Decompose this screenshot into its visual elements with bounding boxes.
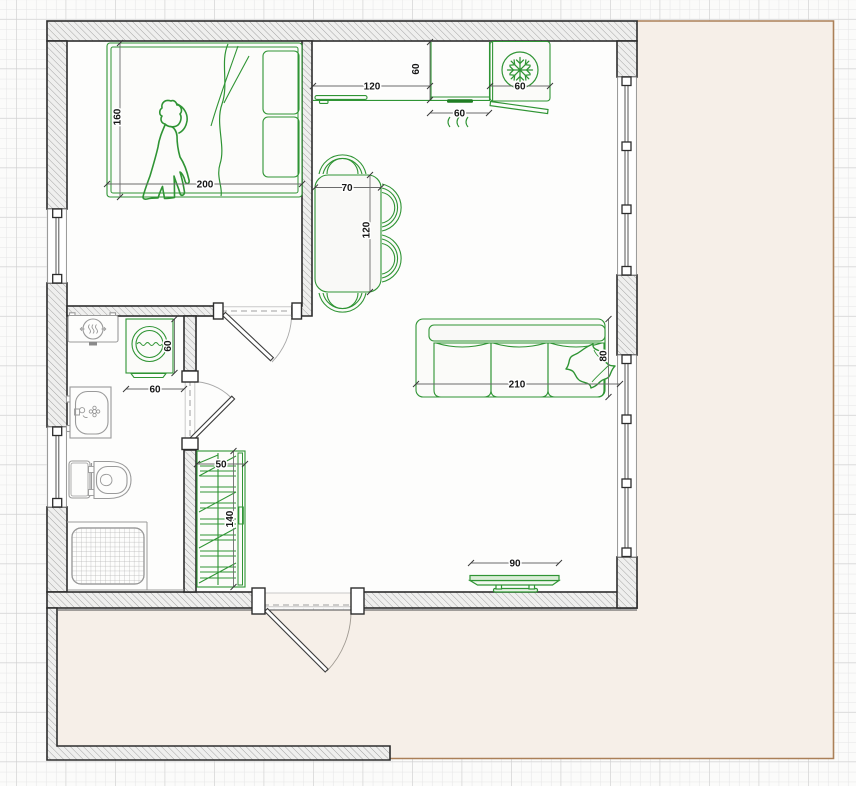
svg-text:60: 60 — [163, 340, 174, 352]
svg-text:120: 120 — [362, 221, 373, 238]
svg-text:60: 60 — [514, 82, 526, 93]
svg-text:60: 60 — [454, 109, 466, 120]
svg-text:140: 140 — [225, 510, 236, 527]
svg-text:200: 200 — [197, 180, 214, 191]
svg-text:60: 60 — [411, 63, 422, 75]
svg-text:60: 60 — [149, 385, 161, 396]
svg-text:70: 70 — [341, 183, 353, 194]
svg-text:120: 120 — [364, 82, 381, 93]
svg-text:50: 50 — [215, 460, 227, 471]
svg-text:80: 80 — [599, 350, 610, 362]
svg-text:160: 160 — [113, 108, 124, 125]
svg-text:210: 210 — [509, 380, 526, 391]
svg-text:90: 90 — [509, 559, 521, 570]
